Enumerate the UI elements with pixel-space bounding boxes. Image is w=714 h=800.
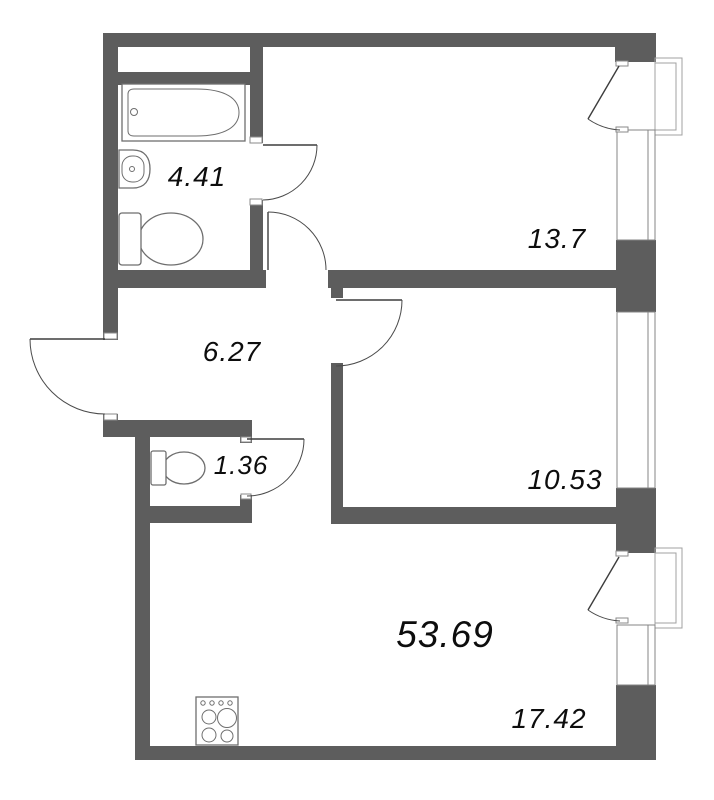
area-label-wc: 1.36: [214, 450, 269, 480]
stove: [196, 697, 238, 745]
entrance-door-swing-arc: [30, 339, 105, 414]
toilet-wc-bowl: [163, 452, 205, 484]
area-label-room-middle: 10.53: [527, 464, 602, 495]
entrance-jamb-top: [104, 333, 117, 339]
wall-top-right-block: [615, 33, 656, 62]
balconies: [655, 58, 682, 628]
floor-plan-drawing: 4.41 13.7 6.27 1.36 10.53 53.69 17.42: [0, 0, 714, 800]
balcony-door-top-swing-arc: [588, 119, 620, 130]
room-top-door-swing-arc: [268, 212, 326, 270]
wall-hall-top-left: [103, 270, 266, 288]
wall-rooms-divider-bottom: [331, 507, 616, 524]
balcony-door-bottom-leaf: [588, 557, 619, 610]
wall-right-block-2: [616, 488, 656, 553]
bathroom-door-jamb-bottom: [250, 199, 262, 205]
area-label-hallway: 6.27: [203, 336, 262, 367]
toilet-wc-tank: [151, 451, 166, 485]
window-top: [617, 130, 655, 240]
wall-right-block-1: [616, 240, 656, 312]
wall-mid-jamb: [331, 288, 343, 298]
area-labels: 4.41 13.7 6.27 1.36 10.53 53.69 17.42: [168, 161, 603, 734]
windows: [617, 130, 655, 685]
balcony-door-bottom-swing-arc: [588, 610, 620, 621]
wall-wc-bottom: [135, 506, 252, 523]
area-label-bathroom: 4.41: [168, 161, 227, 192]
bathroom-door-swing-arc: [263, 145, 317, 200]
wc-door-jamb-bottom: [241, 494, 251, 499]
area-label-room-top-right: 13.7: [528, 223, 587, 254]
bathroom-door-jamb-top: [250, 137, 262, 143]
walls: [103, 33, 656, 760]
door-jambs: [104, 61, 628, 623]
window-middle: [617, 312, 655, 488]
wall-left-lower: [135, 425, 150, 760]
room-middle-door-swing-arc: [336, 300, 402, 366]
balcony-door-top-leaf: [588, 66, 619, 119]
bathtub: [122, 84, 245, 141]
wall-entry-lintel-wc-top: [103, 420, 252, 437]
bathtub-outline: [122, 84, 245, 141]
wall-bath-right-upper: [250, 47, 263, 143]
balcony-top-outline: [655, 58, 682, 135]
toilet-bathroom-tank: [119, 213, 141, 265]
floor-plan: 4.41 13.7 6.27 1.36 10.53 53.69 17.42: [0, 0, 714, 800]
toilet-bathroom-bowl: [139, 213, 203, 265]
window-bottom: [617, 625, 655, 685]
balcony-door-top-jamb-1: [616, 61, 628, 66]
toilet-bathroom: [119, 213, 203, 265]
doors: [30, 66, 620, 621]
wall-rooms-divider-top: [328, 270, 616, 288]
balcony-bottom-inner-outline: [655, 553, 676, 623]
wall-shaft-bottom: [118, 72, 250, 85]
balcony-door-bottom-jamb-1: [616, 551, 628, 556]
entrance-jamb-bottom: [104, 414, 117, 420]
balcony-top-inner-outline: [655, 63, 676, 130]
wall-bottom: [135, 746, 656, 760]
toilet-wc: [151, 451, 205, 485]
balcony-bottom-outline: [655, 548, 682, 628]
wall-bath-right-lower: [250, 200, 263, 270]
wall-left-upper: [103, 33, 118, 340]
total-area-label: 53.69: [396, 614, 494, 655]
wall-right-block-3: [616, 685, 656, 760]
wall-mid-vertical: [331, 363, 343, 523]
area-label-kitchen-living: 17.42: [511, 703, 586, 734]
sink: [119, 150, 150, 188]
wall-top: [103, 33, 655, 47]
